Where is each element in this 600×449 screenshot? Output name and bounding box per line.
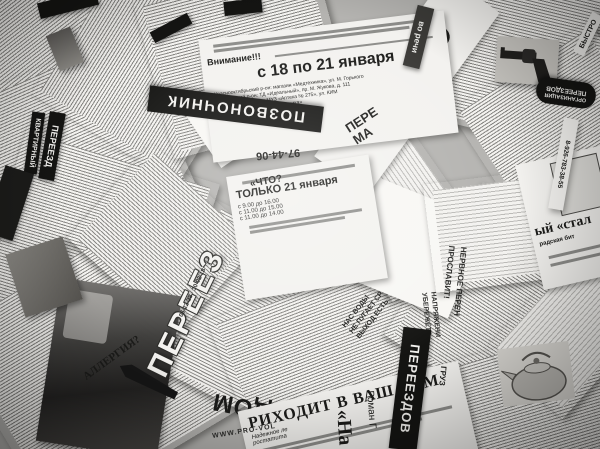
gruz-label: ГРУЗ bbox=[437, 366, 448, 386]
kettle-sketch bbox=[497, 341, 576, 407]
pereezdov-label: ПЕРЕЕЗДОВ bbox=[397, 343, 423, 434]
na-quote-side-label: «На bbox=[331, 409, 356, 446]
tolko-scrap: ТОЛЬКО 21 января с 9.00 до 16.00 с 11.00… bbox=[226, 155, 388, 301]
phone-upside-down: 97-44-06 bbox=[256, 146, 301, 162]
newspaper-collage-photo: осква Внимание!!! с 18 по 21 января • Кр… bbox=[0, 0, 600, 449]
kettle-drawing bbox=[497, 341, 576, 407]
